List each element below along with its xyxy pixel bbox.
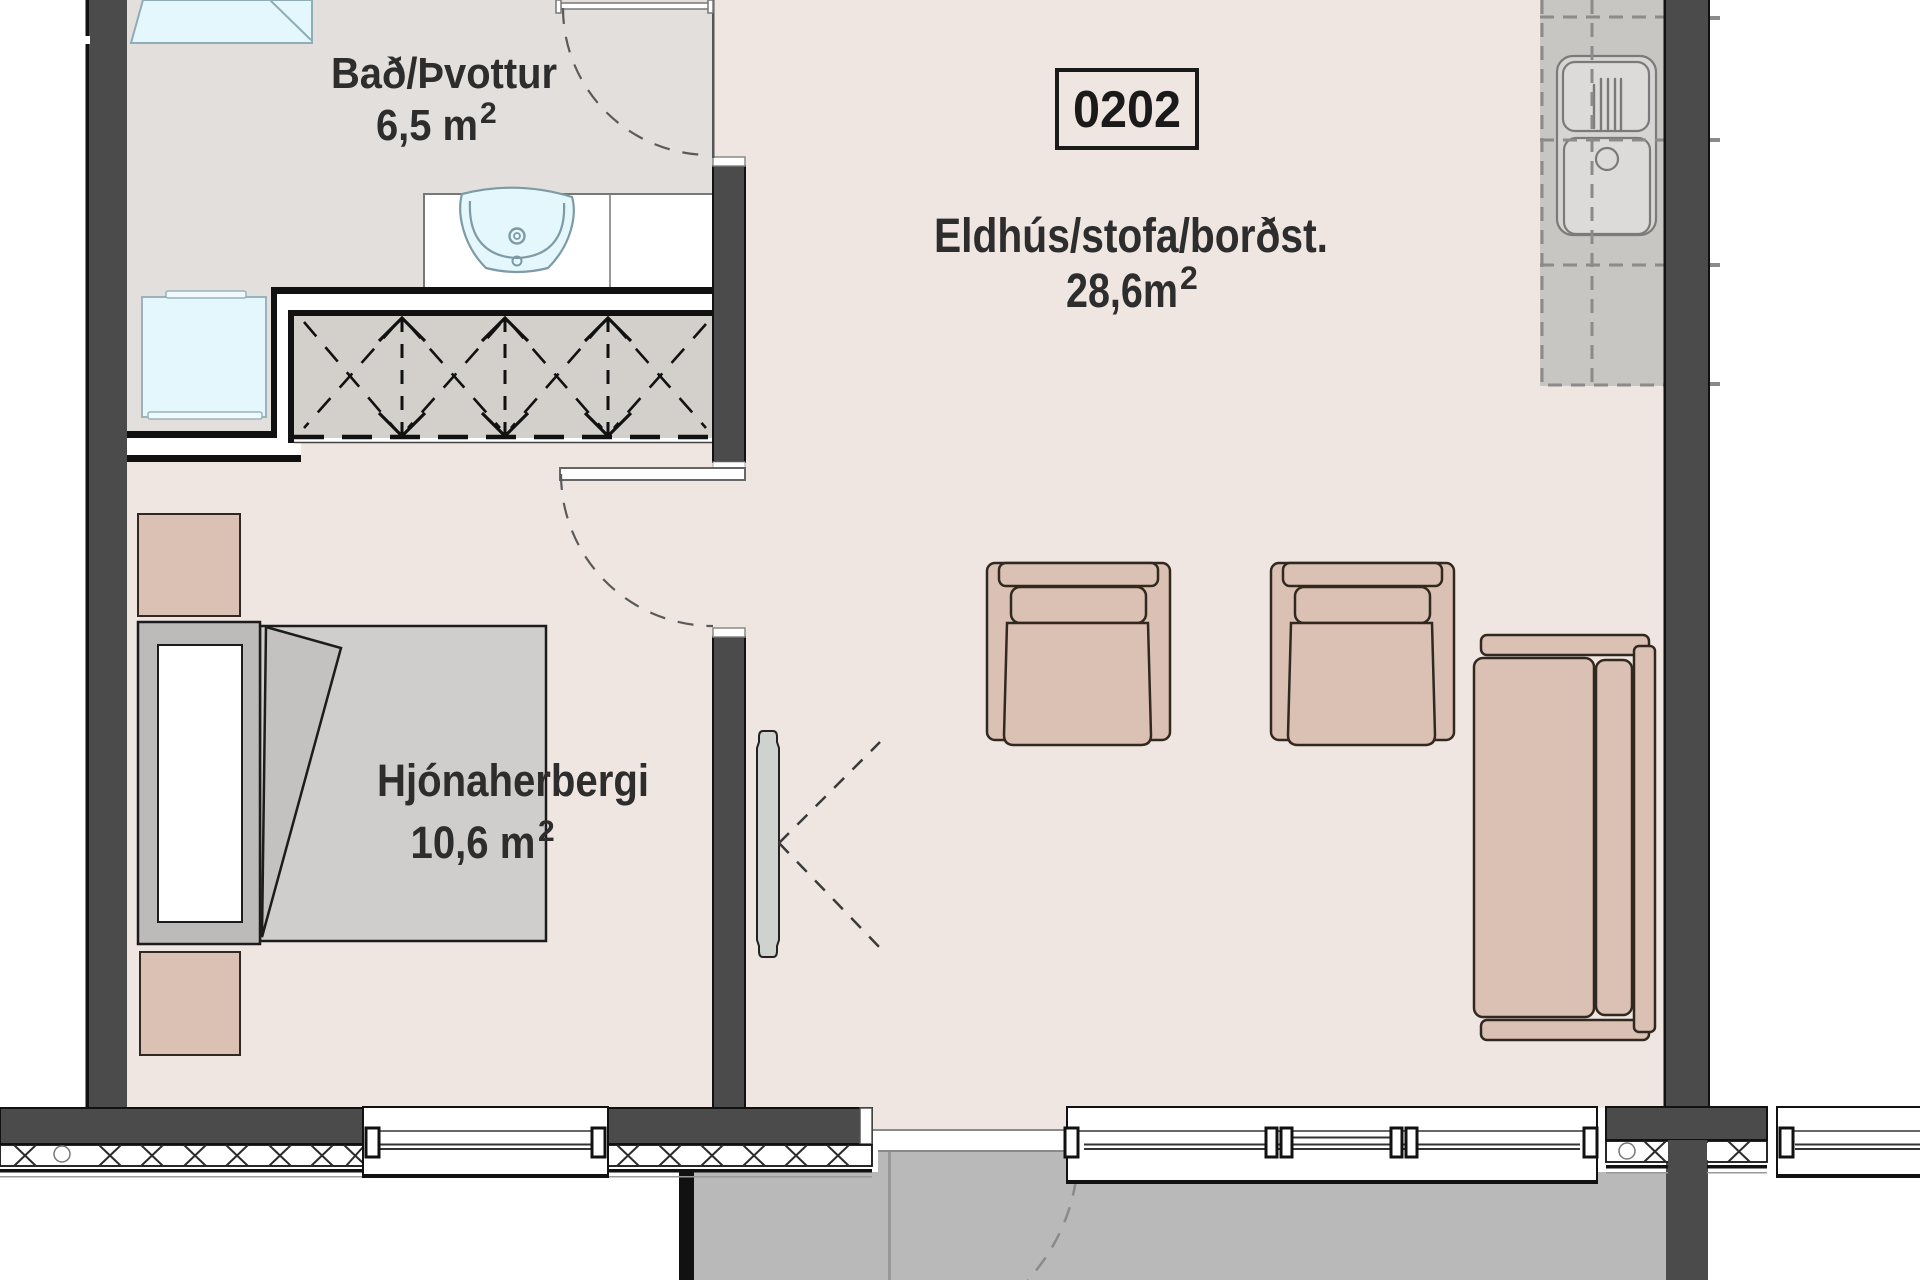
svg-text:28,6m: 28,6m <box>1066 265 1178 318</box>
svg-text:2: 2 <box>538 815 555 848</box>
svg-text:0202: 0202 <box>1073 81 1181 139</box>
svg-text:6,5 m: 6,5 m <box>376 101 478 150</box>
svg-text:Bað/Þvottur: Bað/Þvottur <box>331 49 557 98</box>
svg-text:Hjónaherbergi: Hjónaherbergi <box>377 755 649 806</box>
svg-text:2: 2 <box>480 97 497 130</box>
svg-text:10,6 m: 10,6 m <box>411 817 536 868</box>
svg-text:2: 2 <box>1180 260 1198 296</box>
svg-text:Eldhús/stofa/borðst.: Eldhús/stofa/borðst. <box>934 210 1328 263</box>
